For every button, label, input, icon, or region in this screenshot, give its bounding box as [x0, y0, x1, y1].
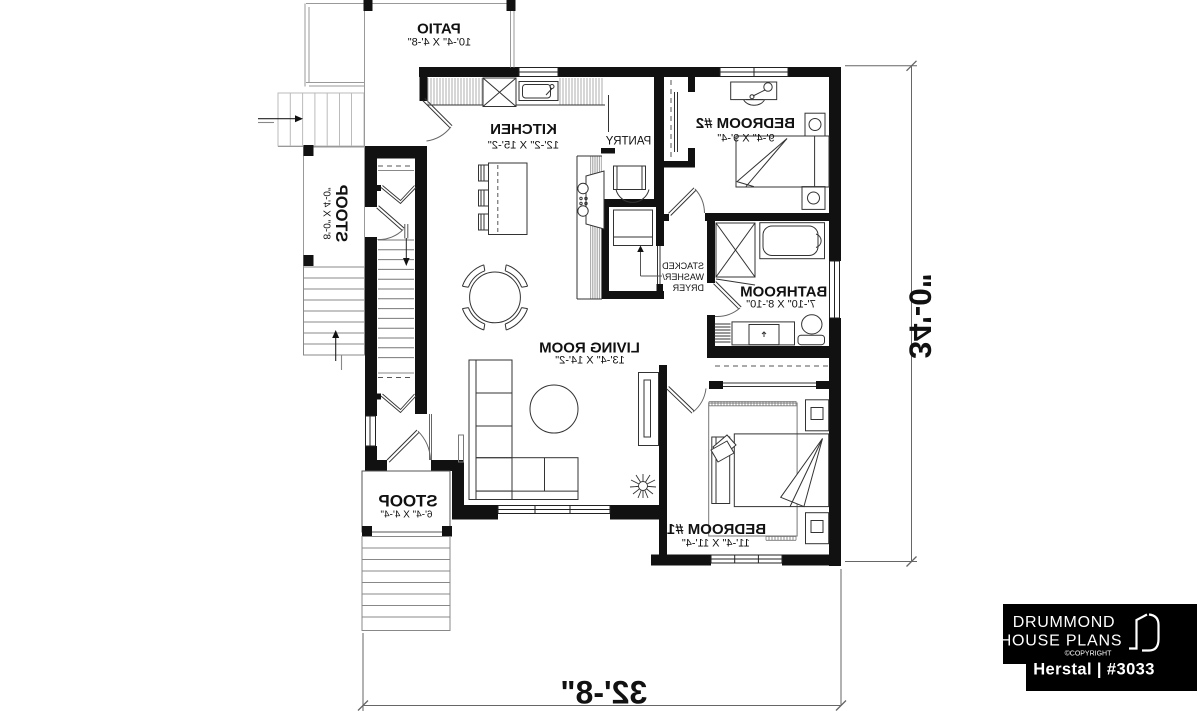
svg-text:STACKED: STACKED: [662, 261, 704, 271]
svg-text:BEDROOM #1: BEDROOM #1: [667, 521, 766, 538]
svg-text:DRYER: DRYER: [672, 283, 704, 293]
svg-text:13'-4" X 14'-2": 13'-4" X 14'-2": [555, 355, 625, 367]
svg-text:©COPYRIGHT: ©COPYRIGHT: [1065, 650, 1112, 658]
svg-text:HOUSE PLANS: HOUSE PLANS: [1000, 633, 1123, 650]
svg-text:STOOP: STOOP: [332, 185, 350, 242]
svg-text:BEDROOM #2: BEDROOM #2: [696, 115, 795, 132]
svg-text:WASHER/: WASHER/: [662, 272, 704, 282]
svg-text:7'-10" X 8'-10": 7'-10" X 8'-10": [746, 299, 816, 311]
svg-text:12'-2" X 15'-2": 12'-2" X 15'-2": [488, 140, 559, 152]
svg-text:8'-0" X 4'-0": 8'-0" X 4'-0": [321, 187, 332, 240]
svg-text:KITCHEN: KITCHEN: [490, 121, 557, 138]
svg-text:PATIO: PATIO: [417, 21, 461, 38]
svg-text:10'-4" X 4'-8": 10'-4" X 4'-8": [408, 37, 471, 49]
svg-text:PANTRY: PANTRY: [605, 136, 651, 148]
svg-text:STOOP: STOOP: [378, 492, 437, 511]
svg-text:11'-4" X 11'-4": 11'-4" X 11'-4": [682, 538, 750, 550]
svg-text:34'-0": 34'-0": [903, 273, 939, 358]
svg-text:Herstal | #3033: Herstal | #3033: [1033, 661, 1155, 679]
svg-text:DRUMMOND: DRUMMOND: [1013, 614, 1115, 631]
svg-text:9'-4" X 9'-4": 9'-4" X 9'-4": [717, 133, 774, 145]
svg-text:32'-8": 32'-8": [560, 675, 647, 711]
svg-text:6'-4" X 4'-4": 6'-4" X 4'-4": [380, 510, 433, 521]
